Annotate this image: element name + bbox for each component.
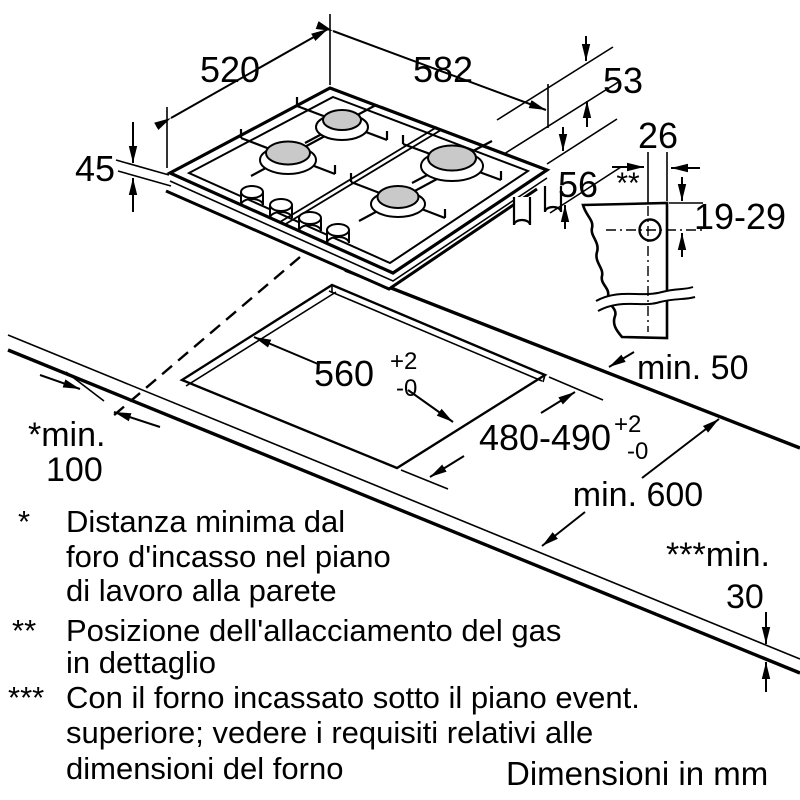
dim-26: 26 bbox=[638, 115, 678, 156]
dim-480-tol-plus: +2 bbox=[614, 411, 641, 438]
dim-min-100-line1: *min. bbox=[28, 416, 105, 454]
footnote-3-line-1: Con il forno incassato sotto il piano ev… bbox=[66, 680, 640, 715]
dim-45: 45 bbox=[75, 148, 115, 189]
units-label: Dimensioni in mm bbox=[506, 755, 768, 792]
hob-foot bbox=[514, 197, 530, 225]
dim-width-582: 582 bbox=[413, 49, 473, 90]
footnote-marker-1: * bbox=[18, 504, 30, 539]
footnote-2-line-1: Posizione dell'allacciamento del gas bbox=[66, 613, 561, 648]
dim-min-30-line2: 30 bbox=[726, 578, 764, 616]
footnote-3-line-2: superiore; vedere i requisiti relativi a… bbox=[66, 715, 593, 750]
footnote-1-line-1: Distanza minima dal bbox=[66, 504, 345, 539]
gas-detail-marker: ** bbox=[616, 167, 640, 200]
footnote-1-line-2: foro d'incasso nel piano bbox=[66, 539, 391, 574]
footnote-3-line-3: dimensioni del forno bbox=[66, 751, 343, 786]
footnote-2-line-2: in dettaglio bbox=[66, 645, 216, 680]
footnote-1-line-3: di lavoro alla parete bbox=[66, 573, 337, 608]
installation-diagram-page: 520 582 53 56 45 26 ** 19-29 bbox=[0, 0, 800, 800]
dim-560-tol-minus: -0 bbox=[396, 375, 417, 402]
installation-diagram: 520 582 53 56 45 26 ** 19-29 bbox=[0, 0, 800, 800]
dim-min-30-line1: ***min. bbox=[666, 536, 770, 574]
dim-19-29: 19-29 bbox=[694, 196, 786, 237]
dim-560: 560 bbox=[314, 353, 374, 394]
dim-56: 56 bbox=[558, 164, 598, 205]
footnote-marker-2: ** bbox=[12, 613, 36, 648]
dim-min-600: min. 600 bbox=[573, 476, 703, 514]
dim-depth-520: 520 bbox=[200, 49, 260, 90]
dim-min-100-line2: 100 bbox=[46, 451, 103, 489]
dim-480-tol-minus: -0 bbox=[627, 438, 648, 465]
dim-53: 53 bbox=[603, 60, 643, 101]
dim-560-tol-plus: +2 bbox=[390, 348, 417, 375]
footnote-marker-3: *** bbox=[8, 680, 44, 715]
dim-min-50: min. 50 bbox=[637, 349, 749, 387]
dim-480-490: 480-490 bbox=[479, 417, 611, 458]
